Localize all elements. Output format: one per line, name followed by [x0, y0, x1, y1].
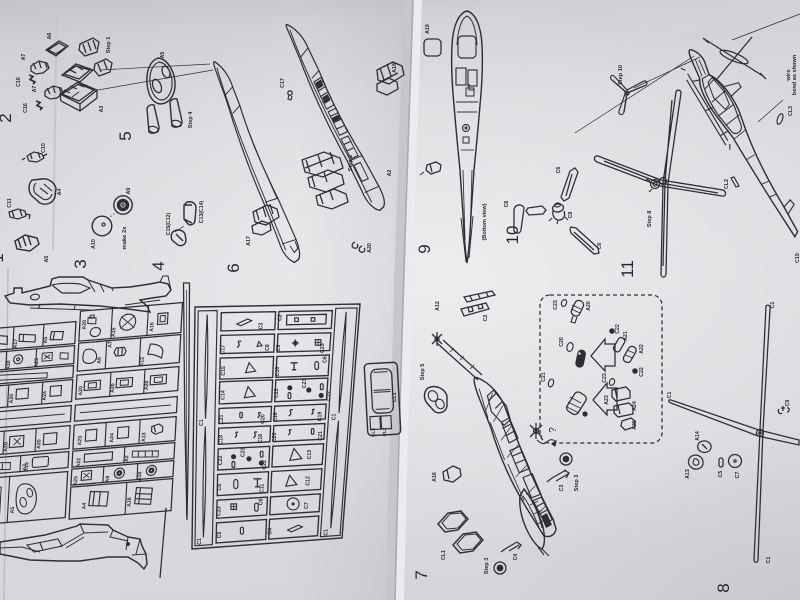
svg-text:C22: C22 [615, 324, 621, 334]
svg-text:C17: C17 [280, 78, 286, 88]
svg-text:A23: A23 [77, 435, 84, 445]
svg-text:C23: C23 [241, 447, 247, 457]
svg-text:C8: C8 [568, 212, 574, 219]
svg-text:A20: A20 [36, 439, 43, 449]
svg-text:C23: C23 [553, 300, 559, 310]
svg-text:C23: C23 [320, 343, 326, 353]
svg-text:C6: C6 [323, 356, 329, 363]
svg-text:C10: C10 [275, 367, 281, 377]
svg-text:C1: C1 [667, 392, 673, 399]
svg-text:A20: A20 [367, 243, 373, 253]
svg-text:A10: A10 [91, 239, 97, 249]
svg-text:C22: C22 [327, 391, 333, 401]
svg-text:C21: C21 [318, 431, 324, 441]
svg-text:C1: C1 [197, 538, 203, 545]
svg-text:A19: A19 [425, 24, 431, 34]
svg-text:Step 8: Step 8 [647, 211, 653, 228]
svg-text:A4: A4 [57, 189, 63, 196]
svg-text:A21: A21 [623, 331, 629, 341]
svg-text:CL1: CL1 [441, 550, 447, 560]
svg-text:A7: A7 [107, 341, 113, 348]
svg-text:A17: A17 [246, 236, 252, 246]
svg-text:Step 5: Step 5 [420, 364, 426, 381]
svg-text:A7: A7 [32, 86, 38, 93]
svg-text:7: 7 [412, 570, 431, 579]
svg-text:C16: C16 [273, 412, 279, 422]
svg-text:A22: A22 [639, 344, 645, 354]
svg-text:A24: A24 [632, 401, 638, 411]
svg-text:A8: A8 [97, 357, 103, 364]
svg-text:3: 3 [71, 259, 90, 268]
svg-text:C3: C3 [258, 323, 264, 330]
svg-text:C6: C6 [597, 243, 603, 250]
svg-text:C22: C22 [639, 367, 645, 377]
svg-text:C23: C23 [302, 379, 308, 389]
svg-text:C21: C21 [541, 372, 547, 382]
svg-text:A9: A9 [105, 475, 111, 482]
svg-text:A23: A23 [34, 358, 41, 368]
svg-text:C15(C12): C15(C12) [166, 212, 172, 235]
svg-text:C20: C20 [559, 337, 565, 347]
svg-text:C16: C16 [258, 434, 264, 444]
svg-text:A20: A20 [78, 386, 85, 396]
svg-text:6: 6 [224, 263, 243, 272]
svg-text:C22: C22 [218, 456, 224, 466]
svg-text:C23: C23 [217, 506, 223, 516]
svg-text:A17: A17 [13, 338, 20, 348]
svg-text:A5: A5 [10, 506, 16, 513]
svg-text:A18: A18 [392, 63, 398, 73]
svg-text:8: 8 [714, 583, 733, 592]
svg-text:C13: C13 [307, 450, 313, 460]
svg-text:C1: C1 [199, 419, 205, 426]
svg-text:A20: A20 [110, 383, 117, 393]
svg-text:C17: C17 [221, 345, 227, 355]
svg-text:CL3: CL3 [370, 428, 375, 437]
svg-text:A12: A12 [139, 357, 146, 367]
svg-text:C22: C22 [262, 460, 268, 470]
svg-text:A24: A24 [109, 433, 116, 443]
svg-text:C11: C11 [7, 198, 13, 207]
svg-text:C2: C2 [483, 315, 489, 322]
svg-text:A5: A5 [160, 52, 166, 59]
svg-text:C6: C6 [504, 201, 510, 208]
svg-text:A13: A13 [141, 432, 148, 442]
svg-text:Step 3: Step 3 [484, 558, 490, 575]
svg-text:A18: A18 [126, 497, 133, 507]
svg-text:Step 1: Step 1 [106, 37, 112, 54]
svg-text:A20: A20 [144, 380, 151, 390]
svg-text:2: 2 [0, 113, 15, 122]
svg-text:A6: A6 [47, 33, 53, 40]
svg-text:C12: C12 [306, 476, 312, 486]
svg-text:CL2: CL2 [381, 427, 386, 436]
svg-text:A16: A16 [432, 472, 438, 482]
svg-text:4: 4 [149, 261, 168, 270]
svg-text:?: ? [548, 427, 559, 433]
svg-text:CL3: CL3 [788, 106, 794, 116]
svg-text:A20: A20 [586, 301, 592, 311]
svg-text:C1: C1 [770, 302, 776, 309]
svg-text:C15: C15 [221, 366, 227, 376]
svg-text:5: 5 [116, 131, 135, 140]
svg-text:C1: C1 [323, 529, 329, 536]
svg-text:A23: A23 [604, 395, 610, 405]
svg-text:A7: A7 [21, 54, 27, 61]
svg-text:A14: A14 [695, 431, 701, 441]
svg-text:C3: C3 [559, 485, 565, 492]
svg-text:A4: A4 [82, 502, 88, 509]
svg-text:A22: A22 [76, 457, 83, 467]
svg-text:C6: C6 [217, 484, 223, 491]
svg-text:C16: C16 [23, 103, 29, 113]
svg-text:C20: C20 [272, 432, 278, 442]
svg-text:C22: C22 [274, 388, 280, 398]
svg-text:A16: A16 [149, 322, 156, 332]
svg-text:A25: A25 [73, 476, 80, 486]
svg-text:C6: C6 [556, 167, 562, 174]
svg-text:10: 10 [503, 226, 522, 245]
svg-text:Step 3: Step 3 [574, 475, 580, 492]
svg-text:C19: C19 [795, 253, 800, 263]
svg-text:A12: A12 [435, 301, 441, 311]
svg-text:C9: C9 [785, 400, 791, 407]
svg-text:C5: C5 [217, 531, 223, 538]
svg-text:A3: A3 [99, 106, 105, 113]
svg-text:C14: C14 [221, 390, 227, 400]
svg-text:1: 1 [0, 253, 7, 262]
svg-text:C20: C20 [261, 414, 267, 424]
svg-text:Step 10: Step 10 [618, 65, 624, 85]
svg-text:A5: A5 [43, 336, 49, 343]
svg-text:A19: A19 [24, 462, 31, 472]
svg-text:A10: A10 [137, 471, 144, 481]
svg-text:C13(C14): C13(C14) [199, 200, 205, 223]
svg-text:A20: A20 [81, 320, 88, 330]
svg-text:C5: C5 [718, 471, 724, 478]
svg-text:A9: A9 [126, 188, 132, 195]
svg-text:Step 2: Step 2 [348, 155, 354, 172]
svg-text:C7: C7 [735, 472, 741, 479]
svg-text:A15: A15 [111, 327, 118, 337]
svg-text:C8: C8 [265, 344, 271, 351]
svg-text:A20: A20 [9, 394, 16, 404]
svg-text:C23: C23 [602, 373, 608, 383]
svg-text:C18: C18 [218, 435, 224, 445]
svg-text:C19: C19 [317, 412, 323, 422]
svg-text:C4: C4 [268, 528, 274, 535]
svg-text:11: 11 [618, 260, 637, 278]
svg-text:C21: C21 [219, 415, 225, 425]
svg-text:A24: A24 [42, 391, 49, 401]
svg-text:C2: C2 [278, 314, 284, 321]
svg-text:(Bottom view): (Bottom view) [482, 203, 488, 240]
svg-text:C1: C1 [766, 557, 772, 564]
svg-text:C10: C10 [41, 143, 47, 153]
svg-text:CL2: CL2 [724, 179, 730, 189]
svg-text:C6: C6 [259, 498, 265, 505]
svg-text:A13: A13 [685, 469, 691, 479]
svg-text:C16: C16 [16, 77, 22, 87]
svg-text:A2: A2 [387, 170, 393, 177]
svg-text:C9: C9 [276, 345, 282, 352]
svg-text:A20: A20 [3, 442, 10, 452]
svg-text:9: 9 [415, 244, 434, 253]
svg-text:C1: C1 [332, 413, 338, 420]
svg-text:C4: C4 [513, 554, 519, 561]
svg-text:make 2x: make 2x [122, 226, 128, 250]
svg-text:A25: A25 [632, 420, 638, 430]
svg-text:A10: A10 [6, 360, 13, 370]
svg-text:A5: A5 [44, 256, 50, 263]
svg-text:C7: C7 [304, 502, 310, 509]
svg-text:Step 4: Step 4 [188, 111, 194, 129]
svg-text:bend as shown: bend as shown [792, 54, 798, 95]
svg-text:C11: C11 [259, 484, 265, 493]
svg-text:A2: A2 [124, 455, 130, 462]
svg-text:CL1: CL1 [392, 392, 399, 402]
